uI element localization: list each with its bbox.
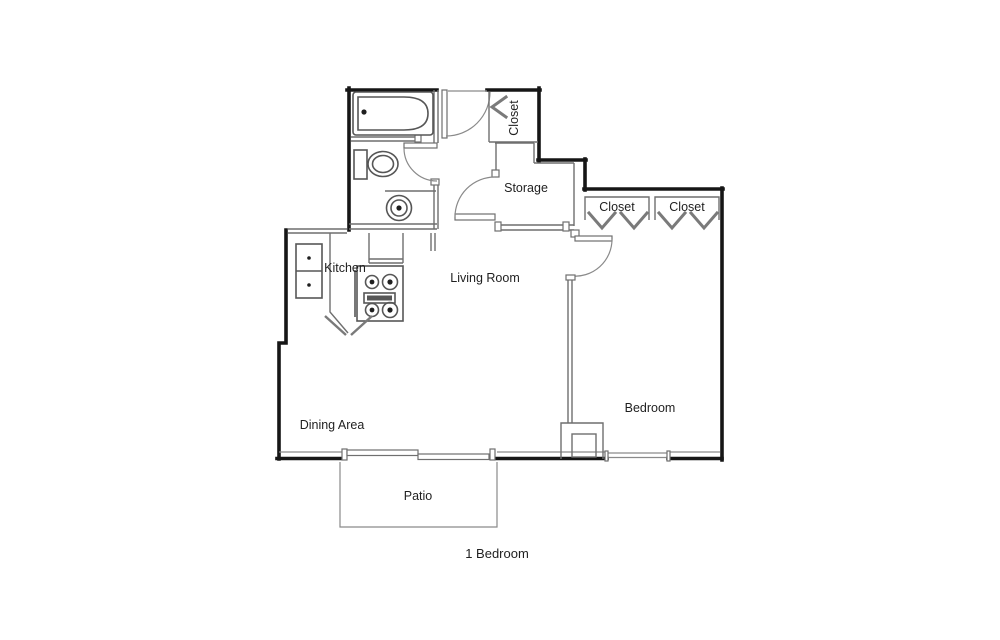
bifold-door-chevron	[691, 213, 717, 228]
patio: Patio	[340, 449, 497, 527]
bifold-door-chevron	[659, 213, 685, 228]
utility-nook	[561, 423, 603, 459]
kitchen-sink-icon	[296, 244, 322, 298]
bathroom	[349, 90, 439, 229]
kitchen: Kitchen	[288, 229, 435, 335]
storage-room: Storage	[455, 143, 574, 231]
plan-caption: 1 Bedroom	[465, 546, 529, 561]
sink-icon	[387, 196, 412, 221]
closet-left: Closet	[585, 197, 649, 228]
patio-label: Patio	[404, 489, 433, 503]
bedroom-door	[571, 236, 612, 276]
storage-label: Storage	[504, 181, 548, 195]
window	[605, 451, 670, 461]
sliding-door	[342, 449, 495, 460]
bathroom-door	[404, 143, 437, 181]
closet-right: Closet	[655, 197, 719, 228]
bifold-door-chevron	[492, 97, 506, 117]
bifold-door-chevron	[621, 213, 647, 228]
hall-door	[442, 90, 490, 138]
bifold-door-chevron	[589, 213, 615, 228]
closet-right-label: Closet	[669, 200, 705, 214]
dining-area-label: Dining Area	[300, 418, 365, 432]
storage-door	[455, 177, 495, 220]
closet-top: Closet	[489, 92, 538, 142]
toilet-icon	[354, 150, 398, 179]
bedroom: Bedroom	[561, 230, 675, 461]
closet-top-label: Closet	[507, 100, 521, 136]
bedroom-label: Bedroom	[625, 401, 676, 415]
bathtub-icon	[353, 92, 433, 135]
living-room-label: Living Room	[450, 271, 519, 285]
floor-plan-canvas: Closet Storage Closet Closet	[0, 0, 1000, 640]
closet-left-label: Closet	[599, 200, 635, 214]
kitchen-label: Kitchen	[324, 261, 366, 275]
floor-plan: Closet Storage Closet Closet	[0, 0, 1000, 640]
